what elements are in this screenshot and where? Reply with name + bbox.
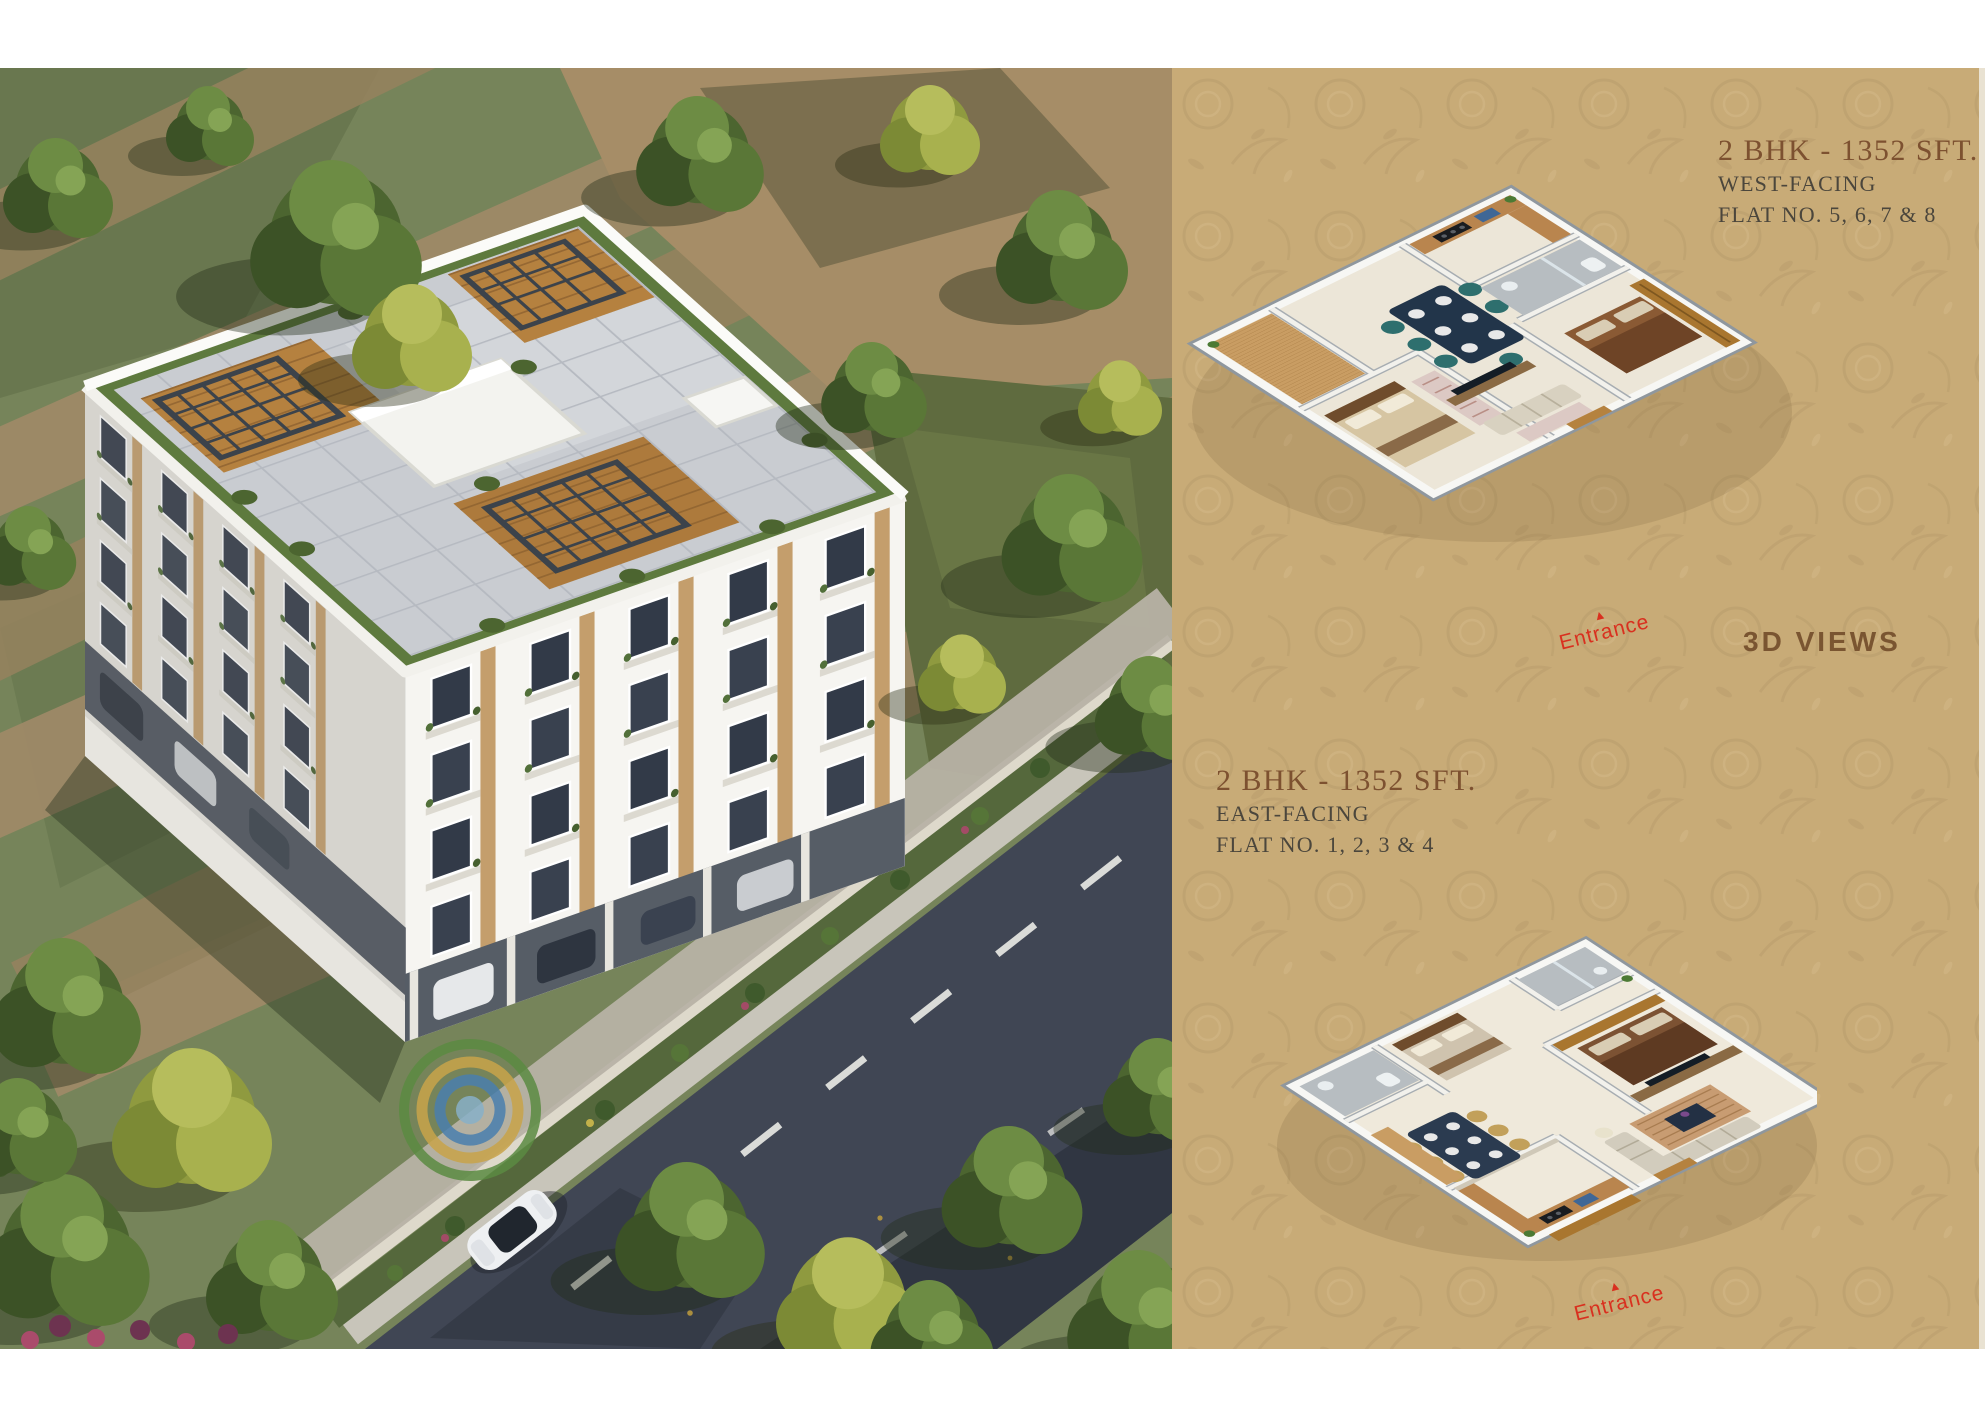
floorplan-west [1172, 82, 1792, 662]
west-unit-flats: FLAT NO. 5, 6, 7 & 8 [1718, 199, 1979, 230]
east-unit-title: 2 BHK - 1352 SFT. [1216, 764, 1477, 798]
east-unit-text: 2 BHK - 1352 SFT. EAST-FACING FLAT NO. 1… [1216, 764, 1477, 860]
west-unit-facing: WEST-FACING [1718, 168, 1979, 199]
views-label: 3D VIEWS [1743, 626, 1901, 658]
floorplan-east [1257, 846, 1817, 1346]
west-unit-text: 2 BHK - 1352 SFT. WEST-FACING FLAT NO. 5… [1718, 134, 1979, 230]
west-unit-title: 2 BHK - 1352 SFT. [1718, 134, 1979, 168]
brochure-page: 2 BHK - 1352 SFT. WEST-FACING FLAT NO. 5… [0, 0, 1985, 1425]
aerial-render-photo [0, 68, 1172, 1349]
floorplan-panel: 2 BHK - 1352 SFT. WEST-FACING FLAT NO. 5… [1172, 68, 1979, 1349]
aerial-scene [0, 68, 1172, 1349]
east-unit-flats: FLAT NO. 1, 2, 3 & 4 [1216, 829, 1477, 860]
east-unit-facing: EAST-FACING [1216, 798, 1477, 829]
page-edge-strip [1979, 68, 1985, 1349]
